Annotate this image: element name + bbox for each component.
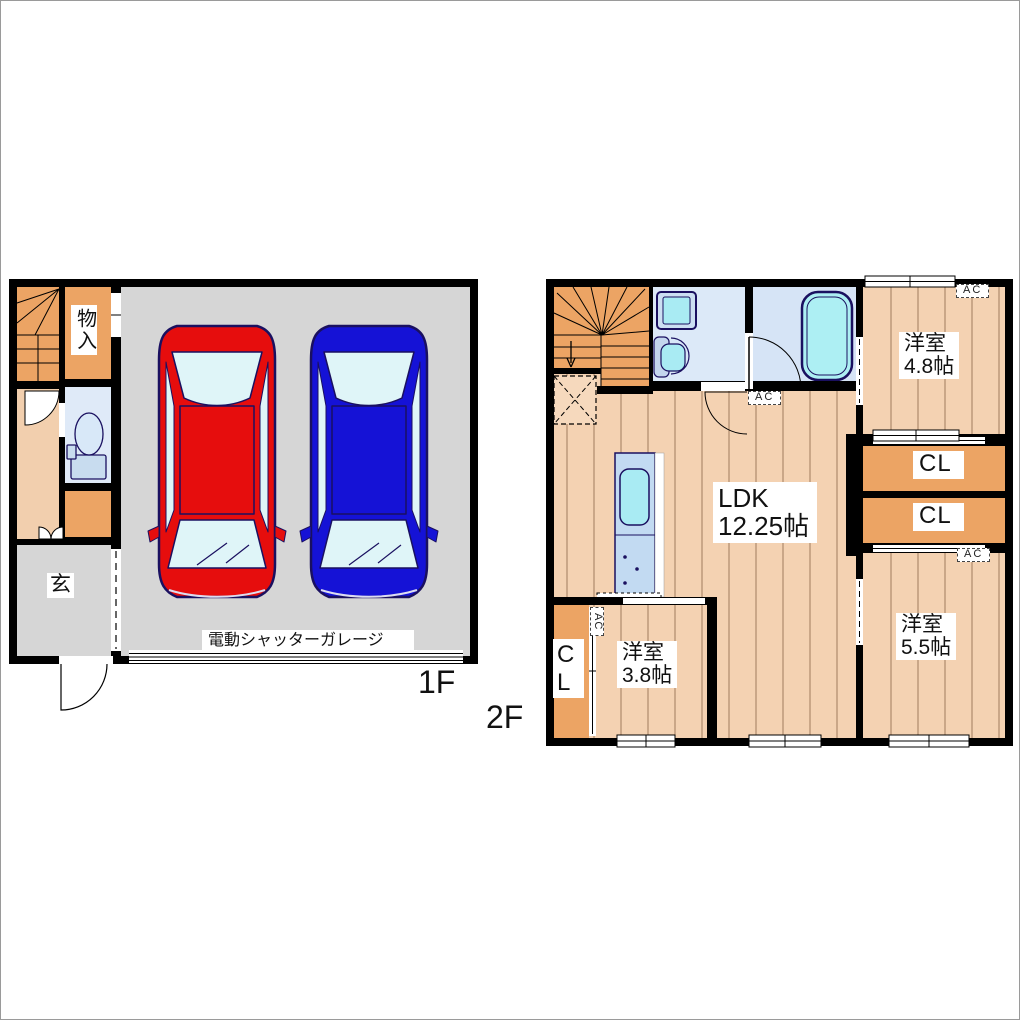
floorplan-drawing [1,1,1020,1020]
closet-1-label: CL [913,451,964,479]
room-4-8-name: 洋室 [904,333,954,356]
floor2-tag: 2F [486,700,523,735]
room-4-8-label: 洋室 4.8帖 [899,332,959,379]
washbasin-icon [657,292,696,329]
garage-label: 電動シャッターガレージ [202,630,414,651]
staircase-1f [17,287,59,381]
floorplan-canvas: 物入 玄 電動シャッターガレージ 1F 2F LDK 12.25帖 洋室 4.8… [0,0,1020,1020]
ac-label-ldk: AC [748,391,781,405]
kitchen-sink-icon [620,469,649,525]
ac-label-room-3-8: AC [590,607,604,636]
garage-shutter [129,650,463,663]
ldk-size: 12.25帖 [718,512,809,540]
room-3-8-label: 洋室 3.8帖 [617,641,677,688]
bathtub-icon [802,292,852,380]
room-5-5-size: 5.5帖 [901,637,951,660]
washroom-2f [653,287,745,383]
bathroom-2f [753,287,856,383]
void-marker [554,376,596,424]
ldk-label: LDK 12.25帖 [713,482,817,543]
car-blue [300,326,438,597]
closet-2-label: CL [913,503,964,531]
entrance-label: 玄 [47,573,74,598]
room-4-8-size: 4.8帖 [904,356,954,379]
room-3-8-name: 洋室 [622,642,672,665]
toilet-room-1f [65,387,111,483]
ldk-name: LDK [718,484,809,512]
room-3-8-size: 3.8帖 [622,665,672,688]
room-5-5-label: 洋室 5.5帖 [896,613,956,660]
car-red [148,326,286,597]
storage-lower [65,491,111,537]
ac-label-room-4-8: AC [956,284,989,298]
closet-3-label: CL [553,639,584,698]
storage-label: 物入 [71,305,97,355]
room-5-5-name: 洋室 [901,614,951,637]
entrance-room [17,545,111,656]
ac-label-room-5-5: AC [957,548,990,562]
entrance-door-arc [61,664,107,710]
floor1-tag: 1F [418,665,455,700]
